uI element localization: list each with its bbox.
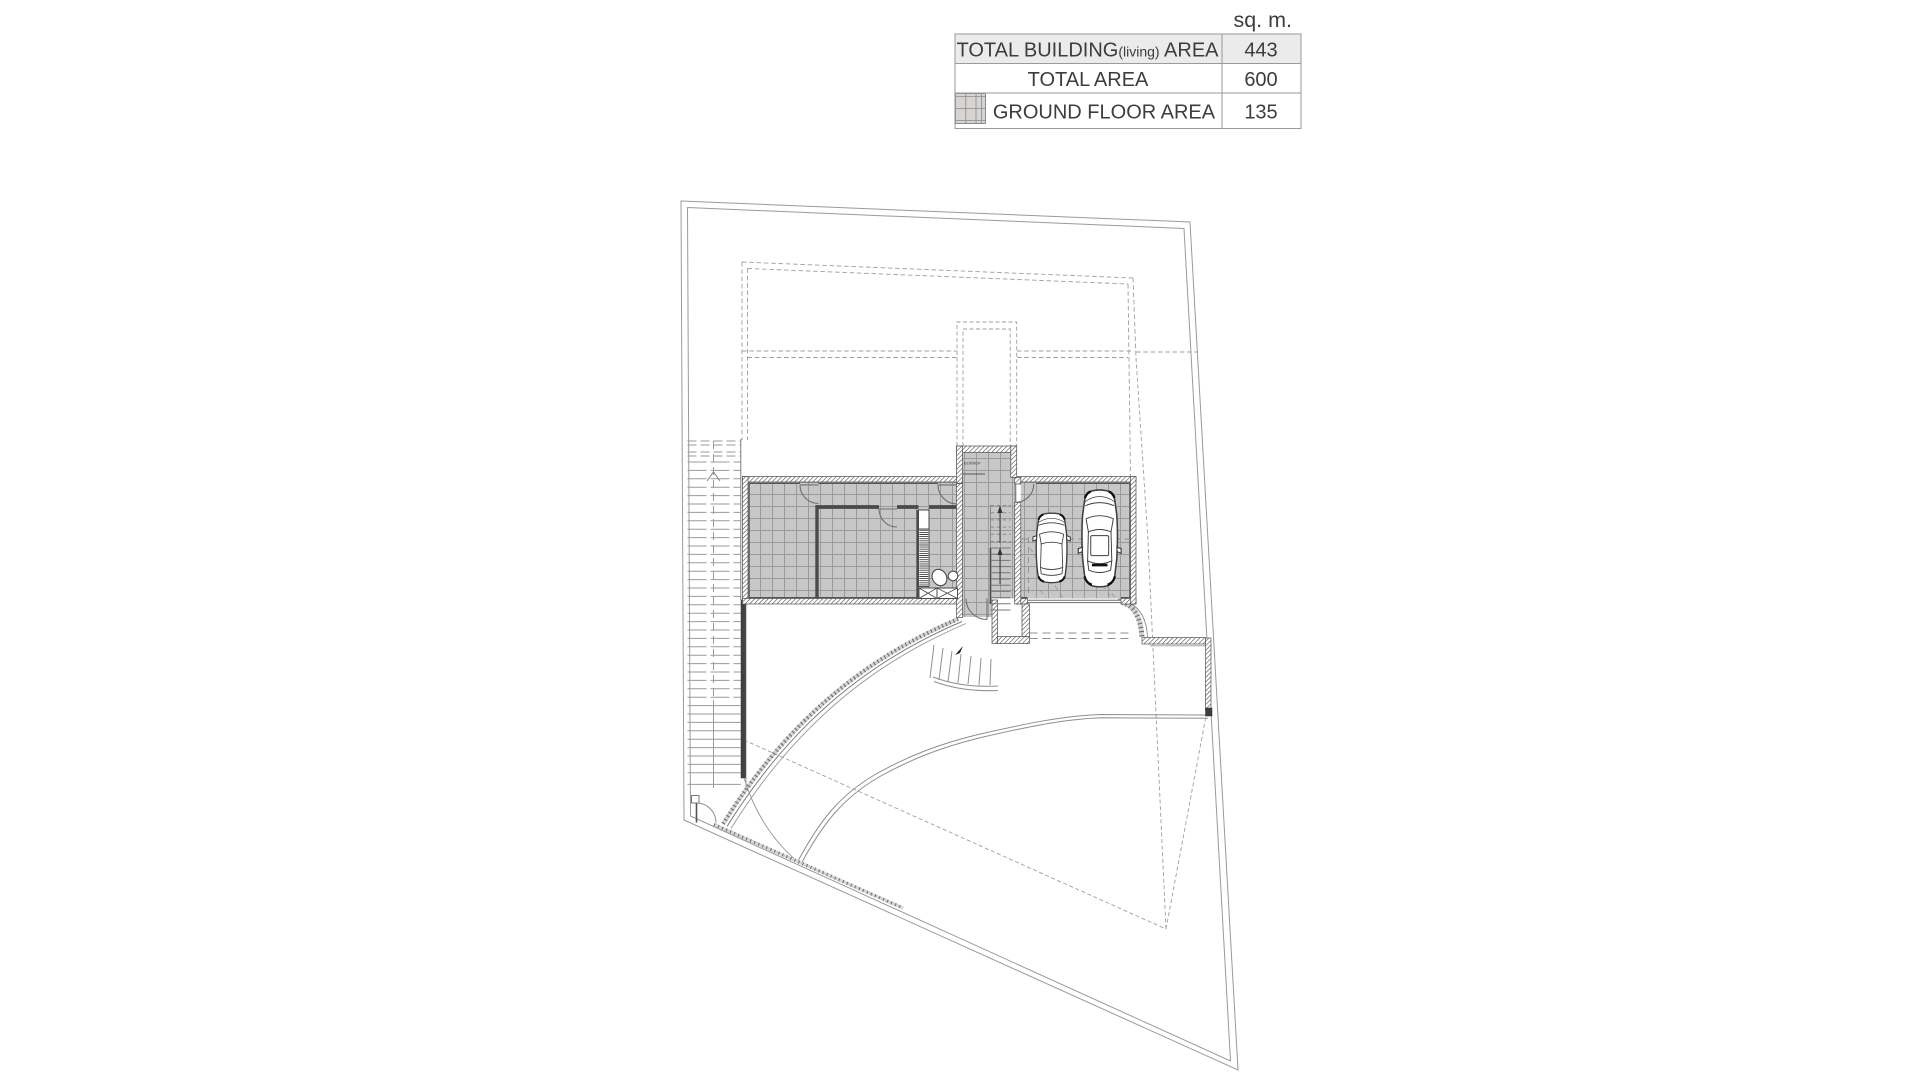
svg-text:sq. m.: sq. m.: [1233, 8, 1292, 32]
svg-text:600: 600: [1244, 69, 1277, 91]
svg-text:БОЙЛЕР: БОЙЛЕР: [964, 461, 981, 466]
svg-text:135: 135: [1244, 102, 1277, 124]
svg-text:443: 443: [1244, 40, 1277, 62]
svg-text:TOTAL BUILDING(living) AREA: TOTAL BUILDING(living) AREA: [956, 40, 1219, 62]
svg-text:TOTAL AREA: TOTAL AREA: [1028, 69, 1149, 91]
svg-text:GROUND FLOOR AREA: GROUND FLOOR AREA: [993, 102, 1216, 124]
